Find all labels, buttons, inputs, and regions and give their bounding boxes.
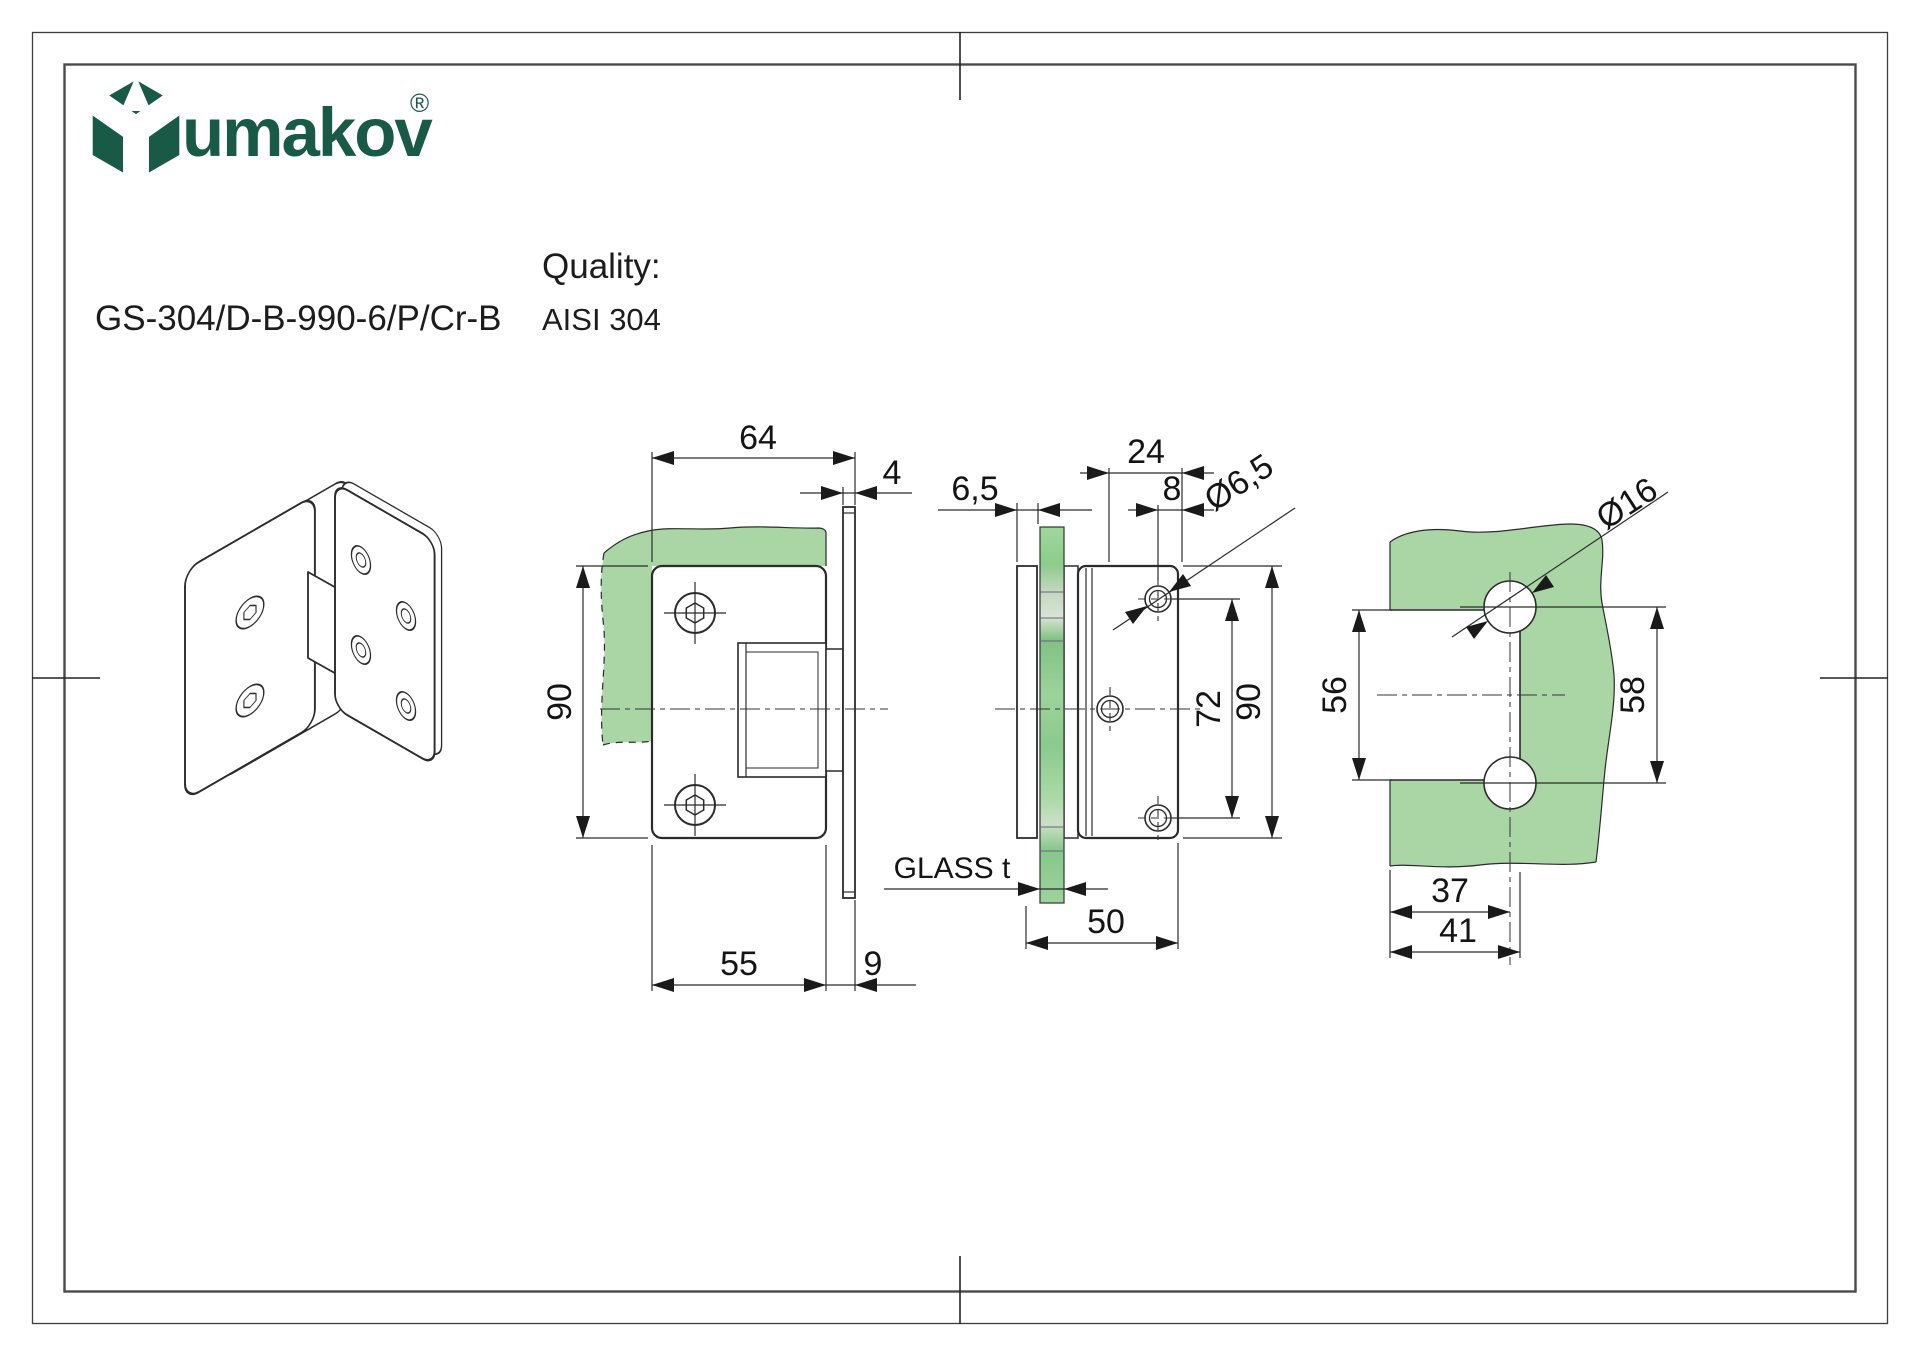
product-code: GS-304/D-B-990-6/P/Cr-B [95,299,502,338]
umakov-logo-icon [85,76,187,183]
umakov-logo: umakov ® [85,76,433,183]
isometric-view [185,476,442,800]
dim-text-glass-t: GLASS t [894,852,1011,885]
side-cover-thickness-dimension: 6,5 [938,470,1092,562]
title-block: GS-304/D-B-990-6/P/Cr-B Quality: AISI 30… [95,247,661,338]
dim-text-6-5: 6,5 [951,470,998,508]
glass-thickness-dimension: GLASS t [884,852,1108,896]
quality-label: Quality: [542,247,661,286]
dim-text-64: 64 [739,419,777,457]
dim-text-37: 37 [1431,872,1469,910]
glass-edge-strip [1040,527,1064,903]
dim-text-9: 9 [864,945,883,983]
dim-text-dia-6-5: Ø6,5 [1198,447,1281,519]
dim-text-4: 4 [883,454,902,492]
dim-text-90-side: 90 [1230,683,1268,721]
prep-hole-spacing-dimension: 58 [1614,607,1664,783]
technical-drawing: umakov ® GS-304/D-B-990-6/P/Cr-B Quality… [0,0,1920,1356]
front-wall-thickness-dimension: 4 [800,454,912,505]
quality-value: AISI 304 [542,302,661,337]
glass-prep-view: 56 58 Ø16 37 41 [1316,470,1668,965]
dim-text-90: 90 [541,683,579,721]
knuckle-barrel [826,649,843,771]
clamp-spacer-edge [1064,566,1078,838]
logo-wordmark: umakov [182,94,433,171]
dim-text-55: 55 [720,945,758,983]
dim-text-dia-16: Ø16 [1590,470,1665,537]
dim-text-56: 56 [1316,676,1354,714]
dim-text-24: 24 [1127,433,1165,471]
side-plate-depth-dimension: 24 [1080,433,1214,562]
pivot-boss [738,643,826,777]
wall-plate-edge [843,507,855,898]
registered-trademark-icon: ® [410,88,429,118]
dim-text-58: 58 [1614,676,1652,714]
clamp-cover-plate-edge [1017,566,1037,838]
dim-text-50: 50 [1087,903,1125,941]
dim-text-8: 8 [1163,470,1182,508]
side-view: 6,5 24 8 Ø6,5 [884,433,1295,950]
drawing-sheet: umakov ® GS-304/D-B-990-6/P/Cr-B Quality… [0,0,1920,1356]
front-view: 64 4 90 55 9 [541,419,916,992]
dim-text-41: 41 [1439,912,1477,950]
dim-text-72: 72 [1190,690,1228,728]
front-bottom-dimensions: 55 9 [652,845,916,992]
iso-clamp-front-plate [185,495,315,800]
